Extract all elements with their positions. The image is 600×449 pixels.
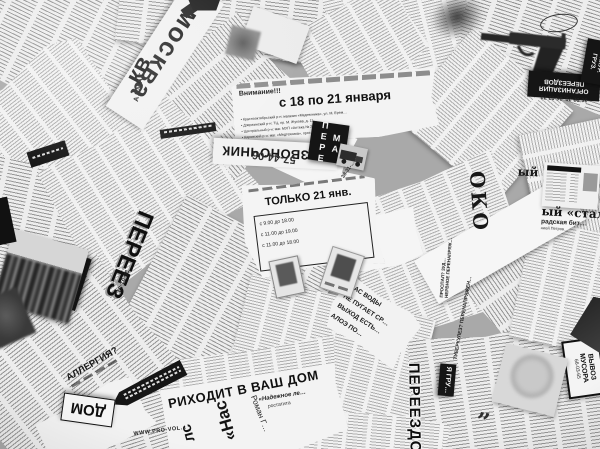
scrap-stalingrad: ый «стал радская бит… нией Петров…	[540, 204, 600, 244]
vash-dom-sub2: ростатита	[267, 400, 291, 410]
reversed-text-dashes	[32, 147, 63, 159]
dom-label: ДОМ	[61, 394, 114, 427]
scrap-small-ad	[542, 162, 600, 210]
ad-header-bar	[547, 165, 581, 172]
scrap-oko: ОКО	[463, 168, 496, 236]
vyvoz-phone: 66-03-65	[572, 359, 580, 380]
pere-column: ПЕРЕ	[314, 119, 330, 164]
ya-gru-label: Я ГРУ…	[442, 366, 452, 393]
ad-fine-print	[545, 172, 579, 202]
vash-dom-big1: «Нас	[211, 398, 241, 443]
portrait-blob	[275, 261, 297, 286]
ad-photo	[583, 173, 598, 192]
stal-fragment: ый	[514, 164, 543, 181]
headline-fragment: ый	[514, 164, 543, 181]
quote-glyph: ”	[468, 406, 498, 436]
scrap-ya-gru-box: Я ГРУ…	[438, 363, 457, 396]
portrait-blob	[330, 254, 356, 282]
scrap-tolko-ad: ТОЛЬКО 21 янв. с 9.00 до 18.00 с 11.00 д…	[238, 169, 386, 280]
fine-print-row	[324, 281, 350, 292]
face-blur	[496, 348, 563, 413]
oko-headline: ОКО	[463, 168, 496, 236]
newspaper-collage-photo: москва кв АЛМАГ Внимание!!! с 18 по 21 я…	[0, 0, 600, 449]
pereezdov-headline: ПЕРЕЕЗДОВ	[397, 370, 433, 449]
scrap-pereezdov-vertical: ПЕРЕЕЗДОВ	[397, 370, 433, 449]
quote-mark: ”	[468, 406, 498, 436]
